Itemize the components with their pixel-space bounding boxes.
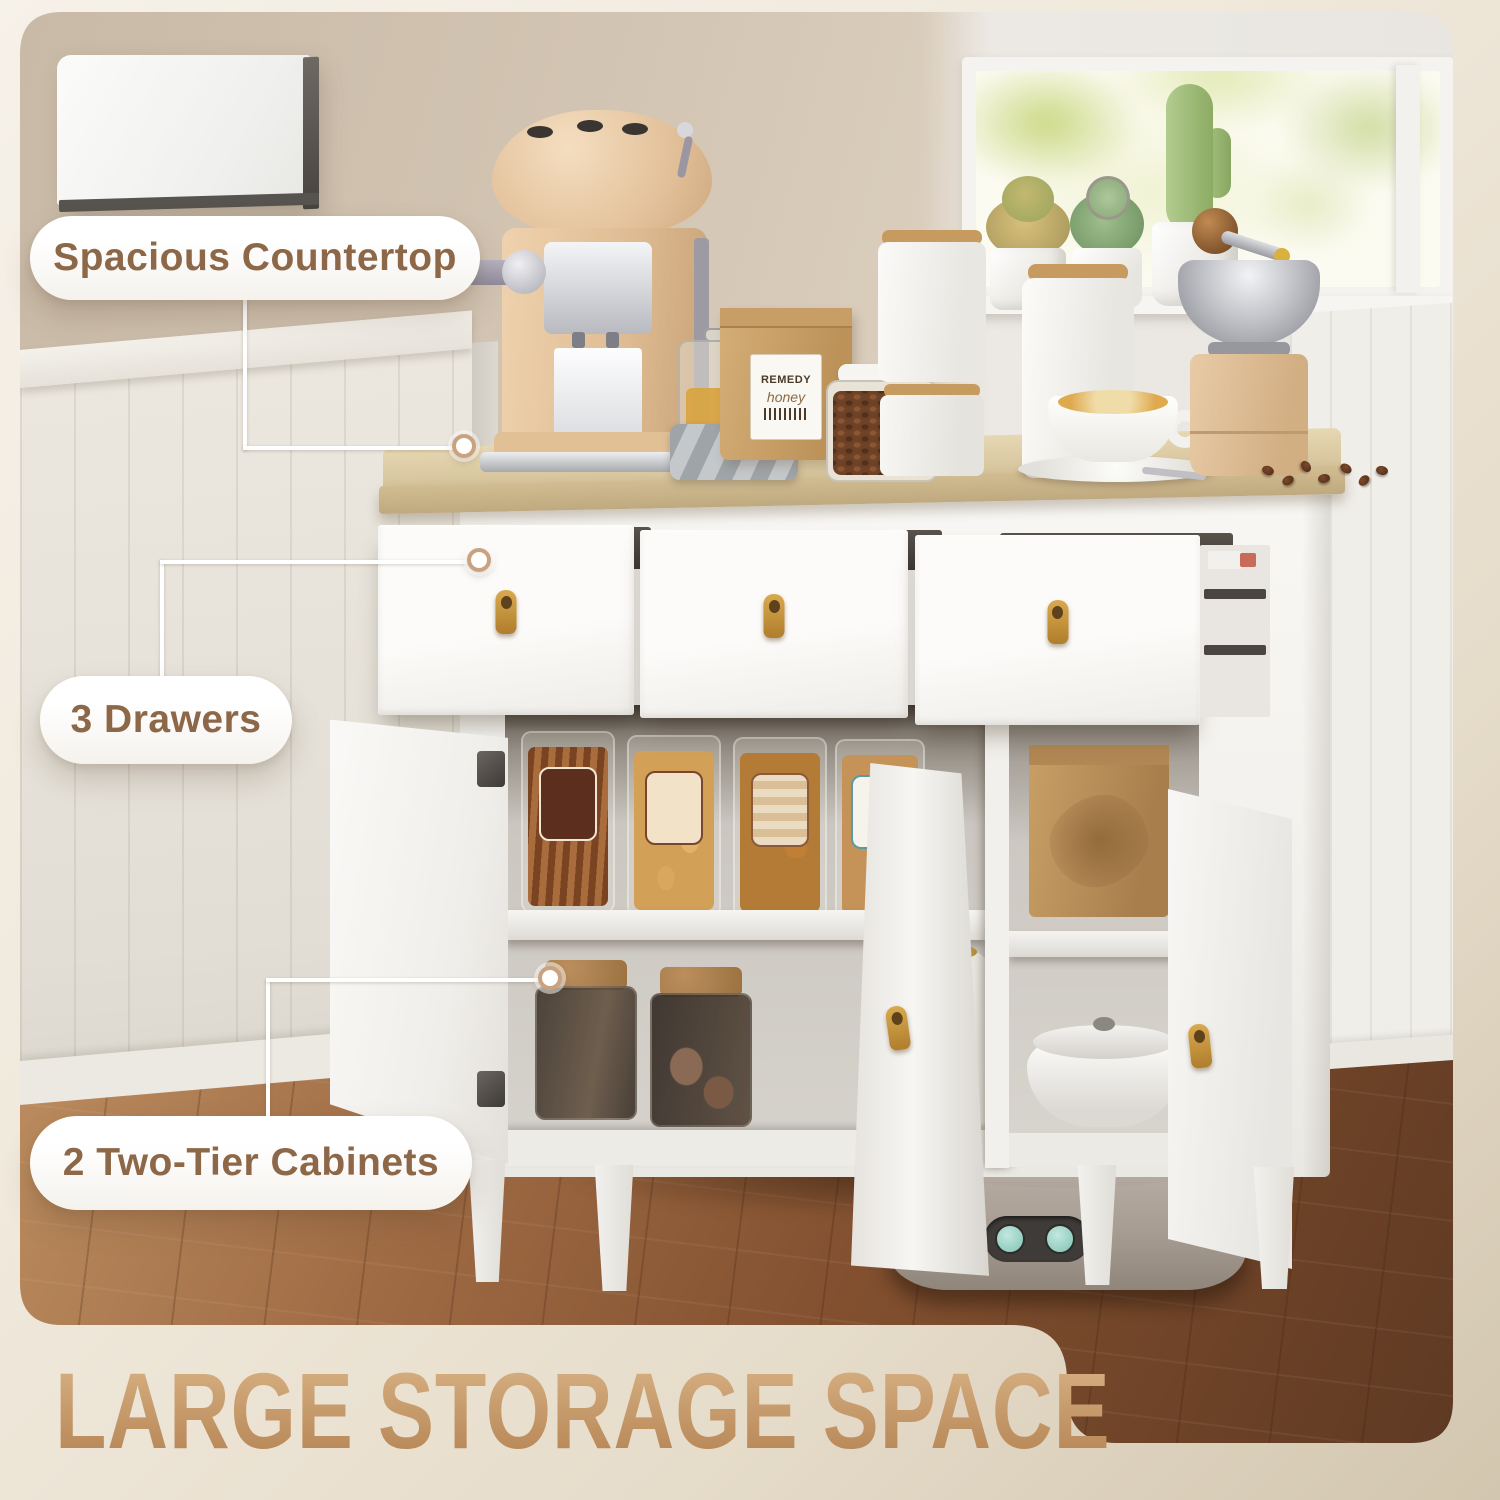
- connector-line-countertop: [243, 300, 247, 450]
- stored-papers: [1208, 551, 1242, 569]
- cork-jar-garlic: [650, 967, 752, 1129]
- spout: [572, 332, 585, 348]
- stored-papers: [1240, 553, 1256, 567]
- jar-glass: [535, 986, 637, 1120]
- machine-button: [577, 120, 603, 132]
- wall-art-canvas: [57, 55, 310, 205]
- pot-lid-knob: [1093, 1017, 1115, 1031]
- leather-pull-handle: [884, 1005, 911, 1051]
- steam-lever: [677, 122, 693, 138]
- machine-button: [622, 123, 648, 135]
- connector-line-drawers: [160, 560, 472, 564]
- dutch-oven-pot: [1027, 1015, 1181, 1127]
- connector-line-countertop: [243, 446, 456, 450]
- window-mullion: [1396, 65, 1420, 293]
- callout-label: Spacious Countertop: [53, 236, 457, 280]
- drawer-slide-rail: [1204, 645, 1266, 655]
- drawer-2: [640, 530, 908, 718]
- spice-jar-chips: [627, 735, 721, 917]
- wall-art-frame-edge: [303, 57, 319, 210]
- spout: [606, 332, 619, 348]
- door-hinge: [477, 1071, 505, 1107]
- jar-glass: [650, 993, 752, 1127]
- leather-pull-handle: [496, 590, 517, 634]
- machine-front-panel: [554, 348, 642, 444]
- succulent-leaves-top: [1086, 176, 1130, 220]
- ceramic-canister: [880, 395, 984, 476]
- vacuum-button-icon: [1045, 1224, 1075, 1254]
- jar-label: [645, 771, 703, 845]
- anchor-dot-countertop: [452, 434, 476, 458]
- machine-button: [527, 126, 553, 138]
- leather-pull-handle: [1187, 1023, 1212, 1069]
- cabinet-divider: [985, 700, 1009, 1168]
- group-head: [544, 242, 652, 334]
- drawer-3: [915, 535, 1200, 725]
- canister-stack: [878, 230, 986, 476]
- connector-line-drawers: [160, 560, 164, 680]
- callout-label: 2 Two-Tier Cabinets: [63, 1141, 439, 1185]
- drawer-3-box-side: [1200, 545, 1270, 717]
- grinder-steel-bowl: [1178, 260, 1320, 346]
- drawer-slide-rail: [1204, 589, 1266, 599]
- callout-pill-countertop: Spacious Countertop: [30, 216, 480, 300]
- callout-pill-drawers: 3 Drawers: [40, 676, 292, 764]
- barcode-icon: [764, 408, 808, 420]
- leather-pull-handle: [1047, 600, 1068, 644]
- leather-pull-handle: [764, 594, 785, 638]
- drawer-1: [378, 525, 634, 715]
- connector-line-cabinets: [266, 978, 542, 982]
- portafilter: [502, 250, 546, 294]
- scattered-coffee-beans: [1260, 456, 1400, 492]
- bag-label: REMEDY honey: [750, 354, 822, 440]
- bag-label-subtext: honey: [767, 389, 805, 405]
- vacuum-button-icon: [995, 1224, 1025, 1254]
- cabinet-door-left: [330, 715, 508, 1173]
- kraft-paper-bag: [1029, 745, 1169, 917]
- product-infographic: REMEDY honey: [0, 0, 1500, 1500]
- bag-label-text: REMEDY: [761, 374, 811, 386]
- jar-label: [751, 773, 809, 847]
- bag-fold: [720, 308, 852, 328]
- spice-jar-snacks: [733, 737, 827, 919]
- callout-pill-cabinets: 2 Two-Tier Cabinets: [30, 1116, 472, 1210]
- latte-art: [1058, 390, 1168, 414]
- door-hinge: [477, 751, 505, 787]
- anchor-dot-drawers: [467, 548, 491, 572]
- coffee-grinder: [1178, 208, 1324, 476]
- vacuum-control-panel: [984, 1216, 1090, 1262]
- spice-jar-cinnamon: [521, 731, 615, 913]
- ceramic-canister: [878, 242, 986, 382]
- succulent-leaves-top: [1002, 176, 1054, 222]
- jar-label: [539, 767, 597, 841]
- callout-label: 3 Drawers: [71, 698, 262, 742]
- anchor-dot-cabinets: [538, 966, 562, 990]
- connector-line-cabinets: [266, 980, 270, 1118]
- headline-title: LARGE STORAGE SPACE: [55, 1362, 1110, 1458]
